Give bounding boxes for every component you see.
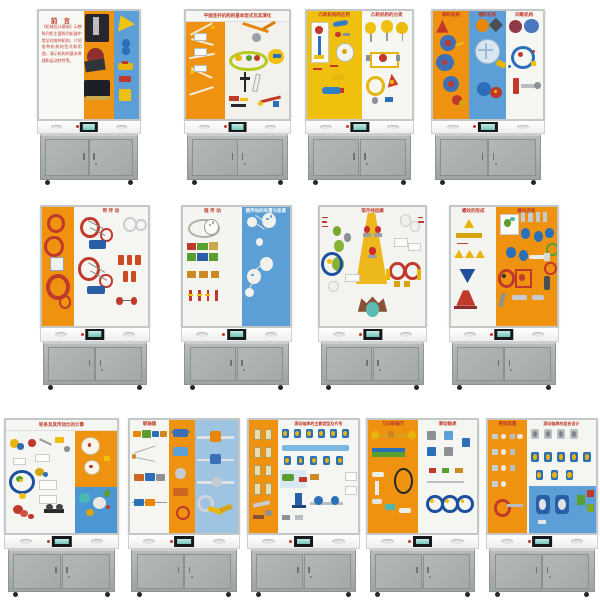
cabinet-door-left (45, 139, 89, 176)
gear-cluster-white (93, 497, 106, 509)
shelf-strip (282, 445, 350, 451)
tensioner-sprocket (245, 288, 254, 298)
control-panel (366, 535, 479, 549)
motor-model (50, 257, 64, 271)
bearing-bore (338, 458, 342, 463)
support-block (273, 101, 279, 107)
keyhole (495, 163, 497, 165)
pipe-part (372, 472, 384, 477)
small-part (295, 515, 304, 520)
panel-title: 棘轮机构 (433, 12, 469, 18)
speaker-grille-right (387, 125, 399, 130)
keyhole (243, 369, 245, 371)
display-cabinet-intermittent-mechanism: 棘轮机构槽轮机构间歇机构 (431, 9, 545, 186)
door-handle (232, 153, 234, 160)
key-pin-sample (254, 429, 260, 440)
speaker-grille-right (400, 332, 412, 337)
bearing-bore (539, 499, 547, 510)
crank-part (513, 78, 519, 94)
keyhole (366, 163, 368, 165)
control-panel (181, 328, 292, 342)
caster-wheel (401, 180, 406, 185)
display-panels: 棘轮机构槽轮机构间歇机构 (433, 11, 543, 119)
geneva-slot (485, 43, 487, 58)
gear-teal (79, 493, 90, 503)
product-photo: 前 言《机械设计基础》示教陈列柜主要陈列机器中常见的各种机构，介绍各种机构的型式… (0, 0, 600, 600)
screen-display (366, 331, 379, 337)
door-handle (377, 360, 379, 367)
washer-ring (544, 262, 556, 276)
red-part (335, 32, 340, 37)
screen-display (481, 124, 495, 130)
display-cabinet-coupling: 联轴器 (128, 418, 240, 598)
speaker-grille-left (20, 539, 32, 544)
coupling-center (212, 477, 222, 487)
display-cabinet-universal-joint-sliding-bearing: 万向联轴节滑动轴承 (366, 418, 479, 598)
caster-wheel (440, 180, 445, 185)
door-handle (242, 153, 244, 160)
display-cabinet-belt-drive: 带 传 动 (40, 205, 150, 391)
keyhole (244, 163, 246, 165)
caster-wheel (278, 180, 283, 185)
display-panels: 密封装置滚动轴承的组合设计 (488, 420, 596, 533)
cabinet-door-right (373, 347, 419, 382)
door-handle (100, 360, 102, 367)
red-indicator-button (528, 540, 531, 543)
display-panels: 带 传 动 (42, 207, 148, 326)
coupling-center (210, 431, 221, 441)
display-cabinet-bearing-assembly: 密封装置滚动轴承的组合设计 (486, 418, 598, 598)
seal-part (492, 465, 497, 471)
door-handle (66, 567, 68, 574)
belt-section (127, 255, 132, 266)
bearing-sample (323, 456, 330, 465)
bearing-block (444, 431, 453, 440)
caster-zone (322, 385, 422, 391)
display-panels: 联轴器 (130, 420, 238, 533)
pulley (44, 236, 64, 257)
bearing-sample (294, 429, 301, 438)
yellow-part (119, 89, 131, 101)
driver-disc (476, 19, 489, 32)
screen-display (297, 539, 311, 545)
label-card (194, 48, 206, 56)
disc-cam (396, 22, 408, 34)
control-screen (174, 536, 194, 547)
display-case: 滚动轴承的主要类型及代号 (247, 418, 360, 535)
flange-coupling (173, 429, 188, 437)
control-panel (37, 121, 141, 134)
yellow-part (104, 456, 111, 461)
caster-zone (490, 592, 593, 598)
display-panels: 万向联轴节滑动轴承 (368, 420, 477, 533)
disc-cam (381, 20, 394, 33)
bearing-bore (331, 431, 335, 436)
chain-link (209, 253, 219, 260)
speaker-grille-left (464, 332, 476, 337)
small-gear (459, 100, 466, 106)
cam-stem (370, 34, 372, 43)
red-indicator-button (346, 125, 349, 128)
chain-link (197, 253, 208, 260)
pitch-circle (366, 302, 379, 316)
yellow-part (118, 63, 133, 71)
display-case: 带 传 动 (40, 205, 150, 328)
cabinet-door-left (192, 139, 237, 176)
bearing-bore (533, 431, 537, 437)
keyhole (310, 576, 312, 578)
cabinet-door-left (440, 139, 488, 176)
coupling-model (156, 474, 165, 481)
display-panels: 凸轮机构的应用凸轮机构的分类 (307, 11, 412, 119)
keyhole (101, 369, 103, 371)
cabinet-door-right (504, 347, 551, 382)
handle-part (253, 515, 264, 518)
door-handle (230, 360, 232, 367)
bearing-unit (544, 429, 552, 439)
control-screen (413, 536, 433, 547)
cabinet-door-left (326, 347, 372, 382)
keyhole (510, 369, 512, 371)
ring-hub (327, 259, 331, 264)
panel-title: 间歇机构 (506, 12, 543, 18)
bushing-red (429, 468, 436, 474)
key-pin-sample (265, 483, 271, 494)
screen-display (353, 124, 366, 130)
chain-link (209, 242, 219, 250)
door-handle (366, 360, 368, 367)
small-part (282, 515, 291, 520)
geneva-slot (478, 49, 493, 51)
bearing-sample (330, 429, 337, 438)
pin-collar (197, 294, 202, 296)
display-cabinet-involute-gear-profile: 渐开线齿廓 (318, 205, 427, 391)
cam-base (314, 55, 323, 58)
bushing-orange (455, 468, 463, 474)
display-panels: 链 传 动链传动的布置与张紧 (183, 207, 290, 326)
cabinet-door-right (237, 139, 282, 176)
speaker-grille-right (116, 125, 127, 130)
label-card (39, 480, 57, 490)
roller-green (282, 474, 294, 481)
cabinet-door-right (542, 554, 589, 589)
cabinet-door-right (184, 554, 231, 589)
indicator-lamp (19, 493, 26, 499)
cabinet-door-left (256, 554, 304, 589)
caster-zone (309, 180, 409, 186)
base-cabinet (8, 549, 116, 592)
display-case: 密封装置滚动轴承的组合设计 (486, 418, 598, 535)
gear (64, 446, 71, 452)
red-indicator-button (359, 333, 362, 336)
door-handle (297, 567, 299, 574)
bearing-block (444, 447, 453, 456)
shaft-part (507, 504, 522, 507)
caster-wheel (326, 385, 331, 390)
control-screen (80, 122, 98, 133)
caster-wheel (192, 180, 197, 185)
control-panel (318, 328, 427, 342)
red-indicator-button (81, 333, 84, 336)
red-indicator-button (224, 125, 227, 128)
panel-title: 密封装置 (488, 421, 527, 427)
nut (506, 247, 516, 258)
red-indicator-button (289, 540, 292, 543)
speaker-grille-right (571, 539, 583, 544)
red-indicator-button (473, 125, 476, 128)
bearing-bore (552, 472, 556, 478)
door-handle (536, 567, 538, 574)
base-cabinet (321, 342, 423, 385)
base-cabinet (370, 549, 476, 592)
panel-title: 凸轮机构的分类 (362, 12, 412, 18)
link-plate (211, 271, 220, 278)
bearing-bore (558, 499, 566, 510)
cam-hub (342, 49, 347, 54)
adjust-knob (375, 226, 381, 233)
cam-follower (315, 26, 322, 34)
blue-part (385, 97, 393, 101)
track-wheel (254, 55, 260, 61)
display-cabinet-chain-drive: 链 传 动链传动的布置与张紧 (181, 205, 292, 391)
cabinet-door-left (190, 347, 237, 382)
seal-part (492, 434, 497, 440)
bearing-sample (297, 456, 304, 465)
control-screen (51, 536, 71, 547)
mounting-bracket (87, 286, 105, 294)
speaker-grille-left (51, 125, 62, 130)
bolt-model (532, 295, 545, 300)
base-cabinet (184, 342, 288, 385)
pulley (47, 214, 65, 233)
cam-ring (366, 76, 386, 96)
mechanism-block (240, 98, 248, 102)
idler-pulley (135, 219, 146, 231)
seal-part (510, 434, 515, 440)
red-indicator-button (490, 333, 493, 336)
mechanism-block (229, 96, 238, 102)
adjust-knob (369, 247, 375, 254)
track-wheel (235, 55, 241, 61)
caster-wheel (465, 592, 470, 597)
control-screen (294, 536, 314, 547)
caster-wheel (584, 592, 589, 597)
machine-table (86, 96, 110, 99)
label-card (194, 33, 206, 41)
bearing-housing (555, 495, 569, 514)
door-handle (189, 567, 191, 574)
base-cabinet (489, 549, 594, 592)
bearing-unit (557, 429, 565, 439)
panel-title: 渐开线齿廓 (320, 208, 425, 214)
bearing-bore (325, 458, 329, 463)
pin-collar (188, 294, 193, 296)
joint-center (388, 431, 395, 438)
roller-part (332, 74, 344, 80)
shaft-disc (46, 504, 53, 510)
label-card (345, 274, 360, 282)
caster-zone (371, 592, 475, 598)
yellow-block (394, 281, 400, 287)
caster-zone (453, 385, 554, 391)
screen-display (497, 331, 510, 337)
caster-wheel (105, 592, 110, 597)
label-card (35, 454, 50, 462)
cabinet-door-left (13, 554, 62, 589)
sprocket-hole (251, 274, 253, 276)
bolt-model (512, 295, 527, 300)
annotation-line (457, 243, 468, 244)
seal-part (510, 449, 515, 455)
caster-wheel (457, 385, 462, 390)
caster-wheel (375, 592, 380, 597)
red-indicator-button (170, 540, 173, 543)
bearing-sample (342, 429, 349, 438)
speaker-grille-left (501, 539, 513, 544)
caster-zone (436, 180, 541, 186)
nut (519, 250, 529, 261)
sprocket-hole (212, 221, 214, 223)
door-handle (353, 153, 355, 160)
machine-detail (93, 17, 99, 34)
display-case: 凸轮机构的应用凸轮机构的分类 (305, 9, 414, 121)
round-part (265, 510, 272, 517)
panel-title: 槽轮机构 (469, 12, 505, 18)
speaker-grille-right (517, 125, 529, 130)
bearing-bore (307, 431, 311, 436)
bearing-sample (306, 429, 313, 438)
screen-display (230, 331, 243, 337)
thread-strip (456, 233, 481, 238)
bearing-block (427, 447, 436, 456)
gray-part (396, 55, 400, 60)
washer-ring (498, 269, 516, 288)
cabinet-door-right (237, 347, 284, 382)
control-panel (431, 121, 545, 134)
screen-display (231, 124, 244, 130)
gray-disc (344, 233, 351, 241)
belt-section (131, 271, 136, 282)
caster-wheel (278, 385, 283, 390)
door-handle (509, 360, 511, 367)
red-indicator-button (76, 125, 79, 128)
red-block (587, 490, 593, 497)
label-line (313, 68, 321, 70)
socket-sleeve (544, 276, 549, 290)
display-case: 前 言《机械设计基础》示教陈列柜主要陈列机器中常见的各种机构，介绍各种机构的型式… (37, 9, 141, 121)
white-roller (410, 221, 419, 231)
seal-part (510, 465, 515, 471)
sewing-machine-model (84, 80, 110, 97)
cylinder-cam (322, 87, 341, 95)
keyhole (95, 163, 97, 165)
teal-part (385, 504, 395, 510)
display-case: 螺纹的形成螺纹连接 (449, 205, 559, 328)
bearing-sample (282, 429, 289, 438)
screen-display (83, 124, 95, 130)
display-panels: 螺纹的形成螺纹连接 (451, 207, 557, 326)
cabinet-door-right (360, 139, 406, 176)
pipe-part (375, 481, 379, 495)
knob-base (374, 233, 382, 237)
slider-bar (240, 77, 250, 79)
gray-part (343, 33, 350, 36)
display-cabinet-threaded-connection: 螺纹的形成螺纹连接 (449, 205, 559, 391)
control-screen (494, 329, 513, 340)
sprocket-hole (266, 218, 268, 220)
screen-display (177, 539, 190, 545)
red-indicator-button (408, 540, 411, 543)
base-cabinet (40, 134, 138, 180)
display-cabinet-cam-mechanism: 凸轮机构的应用凸轮机构的分类 (305, 9, 414, 186)
key-pin-sample (265, 447, 271, 458)
annotation-line (322, 217, 328, 218)
speaker-grille-right (265, 332, 277, 337)
knob-base (363, 233, 371, 237)
display-panels (6, 431, 117, 533)
green-block (577, 495, 586, 505)
pipe-elbow (399, 508, 411, 513)
cabinet-door-right (95, 347, 142, 382)
yellow-part (313, 97, 321, 102)
speaker-grille-left (55, 332, 67, 337)
door-handle (493, 153, 495, 160)
caster-wheel (48, 385, 53, 390)
wheel-hub (448, 81, 454, 86)
display-panel: 前 言《机械设计基础》示教陈列柜主要陈列机器中常见的各种机构，介绍各种机构的型式… (39, 11, 84, 119)
cam-disc (509, 20, 522, 33)
base-cabinet (435, 134, 542, 180)
base-cabinet (43, 342, 146, 385)
bearing-bore (537, 472, 541, 478)
display-cabinet-planar-linkage: 平面连杆机构的基本型式及其演化 (184, 9, 291, 186)
door-handle (89, 360, 91, 367)
holder-block (417, 269, 421, 280)
caster-zone (185, 385, 287, 391)
red-block (299, 477, 307, 483)
key-pin-sample (265, 465, 271, 476)
display-case: 平面连杆机构的基本型式及其演化 (184, 9, 291, 121)
control-panel (184, 121, 291, 134)
bearing-bore (312, 458, 316, 463)
gear-blank (333, 226, 341, 236)
gear-cluster (28, 514, 34, 519)
display-case: 渐开线齿廓 (318, 205, 427, 328)
bearing-bore (546, 454, 550, 460)
panel-title: 链 传 动 (183, 208, 242, 214)
mounting-bracket (89, 240, 106, 248)
pipe-part (372, 499, 382, 504)
cabinet-door-right (488, 139, 536, 176)
red-part (119, 76, 131, 82)
sprocket-hole (209, 224, 211, 226)
caster-zone (9, 592, 115, 598)
bearing-unit-blue (544, 452, 552, 462)
label-card (194, 65, 206, 73)
coupling-half (142, 430, 151, 438)
caster-wheel (13, 592, 18, 597)
gear-pin (494, 90, 497, 93)
caster-wheel (226, 592, 231, 597)
bearing-bore (285, 458, 289, 463)
link-plate (187, 271, 196, 278)
key-pin-sample (254, 483, 260, 494)
annotation-line (418, 217, 423, 218)
control-panel (128, 535, 240, 549)
bearing-sample (336, 456, 343, 465)
link-plate (199, 271, 208, 278)
bearing-unit-blue (551, 470, 559, 480)
